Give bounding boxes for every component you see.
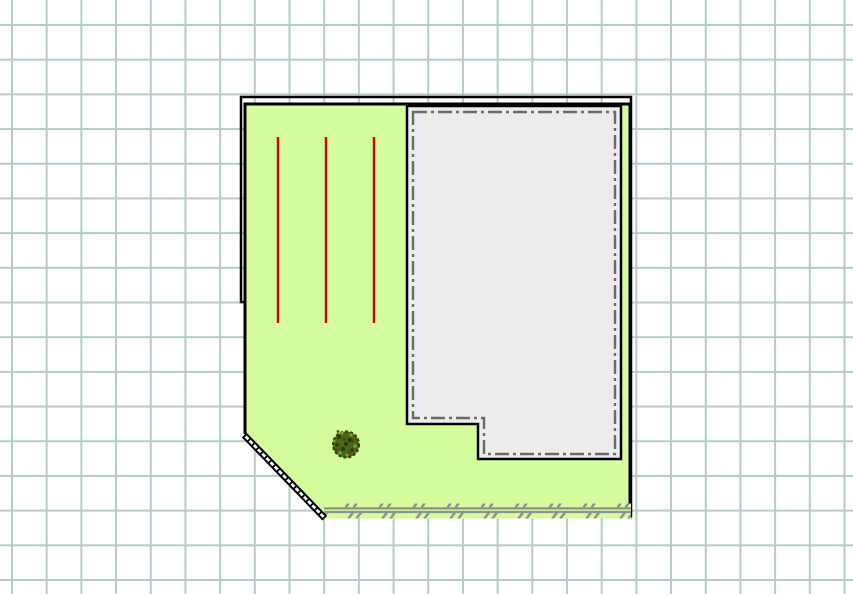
shrub[interactable] — [333, 430, 359, 457]
building-footprint[interactable] — [407, 106, 621, 459]
hedge-strip[interactable] — [324, 504, 631, 519]
building-outline[interactable] — [407, 106, 621, 459]
garden-planner-canvas[interactable] — [0, 0, 853, 594]
plan-drawing — [0, 0, 853, 594]
hedge-texture — [324, 504, 631, 519]
